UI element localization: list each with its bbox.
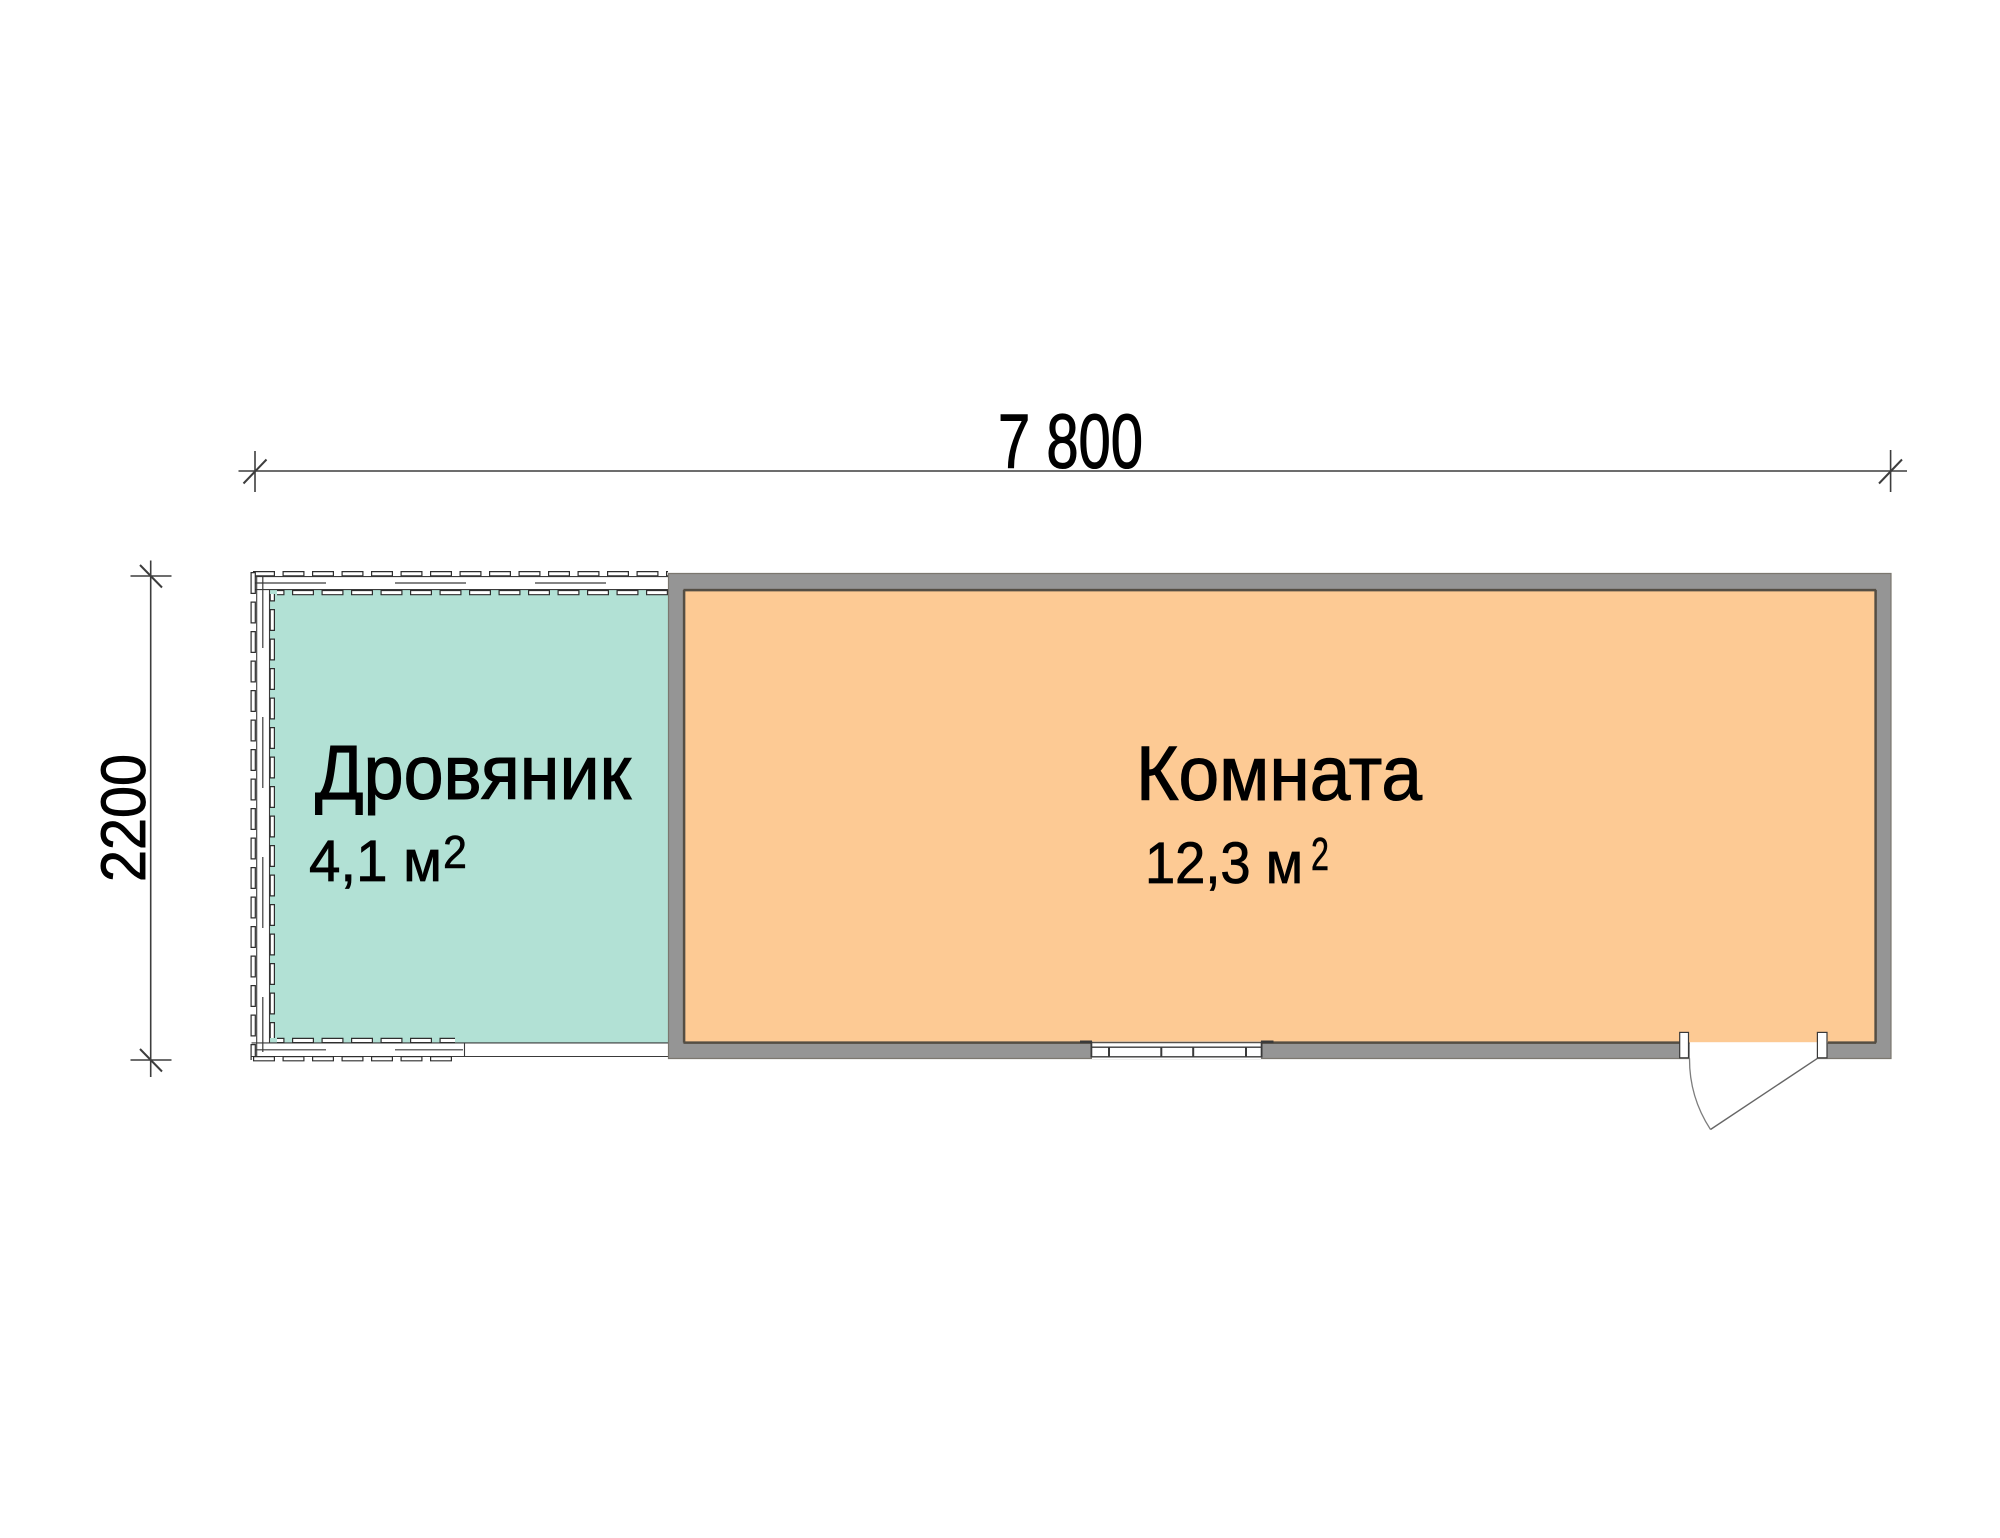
svg-text:2: 2 bbox=[1311, 828, 1329, 880]
svg-text:Комната: Комната bbox=[1136, 731, 1422, 817]
svg-text:7 800: 7 800 bbox=[998, 399, 1143, 485]
svg-text:Дровяник: Дровяник bbox=[315, 730, 632, 816]
svg-text:12,3 м: 12,3 м bbox=[1145, 831, 1303, 896]
svg-text:2: 2 bbox=[443, 826, 467, 878]
svg-text:2200: 2200 bbox=[89, 754, 159, 882]
svg-text:4,1 м: 4,1 м bbox=[309, 829, 442, 894]
